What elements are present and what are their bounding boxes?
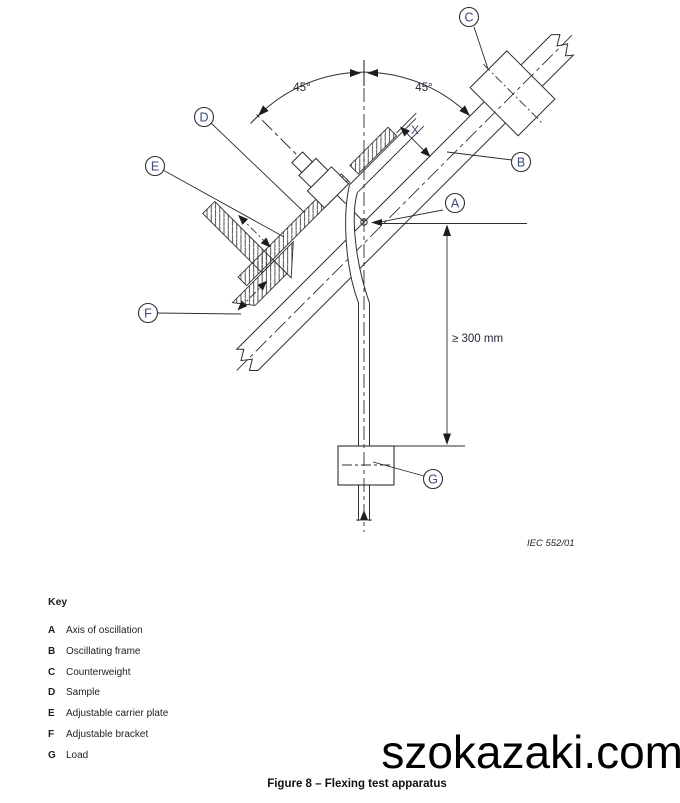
apparatus-diagram: 45° 45° X ≥ 300 mm A B C D E F G IEC 552…: [0, 0, 680, 565]
part-balloons: A B C D E F G: [139, 8, 531, 489]
angle-left-label: 45°: [293, 82, 310, 94]
leader-d: [211, 123, 305, 213]
key-item-letter: A: [48, 621, 66, 642]
frame-assembly: [141, 0, 601, 399]
key-item: FAdjustable bracket: [48, 725, 168, 746]
watermark: szokazaki.com: [381, 729, 680, 775]
arc-arrowhead-top-left: [350, 69, 361, 77]
key-item-label: Oscillating frame: [66, 646, 140, 657]
key-item-label: Adjustable bracket: [66, 729, 148, 740]
key-item-label: Sample: [66, 687, 100, 698]
drawing-reference: IEC 552/01: [527, 538, 575, 549]
arc-arrowhead-left-end: [258, 105, 269, 116]
key-item-label: Load: [66, 750, 88, 761]
key-item-label: Adjustable carrier plate: [66, 708, 168, 719]
key-item: CCounterweight: [48, 663, 168, 684]
angle-right-label: 45°: [415, 82, 432, 94]
key-item: GLoad: [48, 746, 168, 767]
key-item-label: Axis of oscillation: [66, 625, 143, 636]
sample-edge-outer: [350, 118, 416, 184]
dim-arrowhead-up: [443, 225, 451, 237]
key-item-letter: F: [48, 725, 66, 746]
leader-c: [474, 27, 488, 69]
arc-arrowhead-right-end: [459, 105, 470, 116]
key-item-letter: G: [48, 746, 66, 767]
balloon-a-label: A: [451, 197, 460, 211]
figure-caption: Figure 8 – Flexing test apparatus: [17, 778, 680, 790]
key-item: EAdjustable carrier plate: [48, 704, 168, 725]
key-legend: Key AAxis of oscillation BOscillating fr…: [48, 596, 168, 767]
key-title: Key: [48, 596, 168, 608]
key-item: AAxis of oscillation: [48, 621, 168, 642]
key-item: BOscillating frame: [48, 642, 168, 663]
key-item-letter: D: [48, 683, 66, 704]
key-item-letter: B: [48, 642, 66, 663]
key-item: DSample: [48, 683, 168, 704]
leader-f: [157, 313, 241, 314]
balloon-b-label: B: [517, 156, 525, 170]
document-page: 45° 45° X ≥ 300 mm A B C D E F G IEC 552…: [0, 0, 680, 803]
balloon-g-label: G: [428, 473, 438, 487]
min-length-label: ≥ 300 mm: [452, 333, 503, 345]
arc-arrowhead-top-right: [367, 69, 378, 77]
balloon-c-label: C: [464, 11, 473, 25]
balloon-e-label: E: [151, 160, 159, 174]
key-item-letter: E: [48, 704, 66, 725]
x-dimension-label: X: [411, 123, 419, 137]
balloon-f-label: F: [144, 307, 152, 321]
key-item-letter: C: [48, 663, 66, 684]
dim-arrowhead-down: [443, 434, 451, 446]
key-item-label: Counterweight: [66, 667, 130, 678]
carrier-plate-right: [350, 127, 397, 174]
balloon-d-label: D: [199, 111, 208, 125]
